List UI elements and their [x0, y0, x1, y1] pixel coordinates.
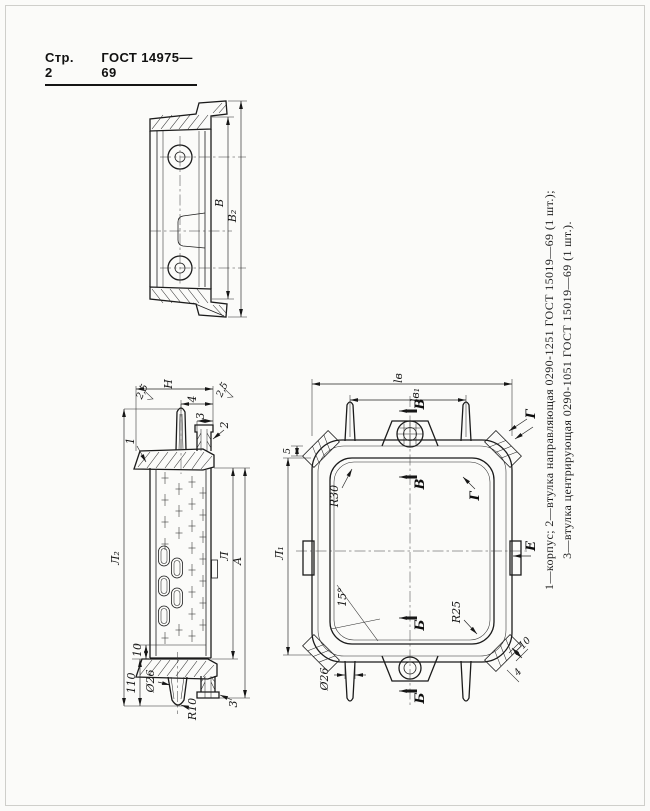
caption-line-1: 1—корпус; 2—втулка направляющая 0290-125…	[540, 190, 558, 590]
section-view-drawing: В В₂	[150, 101, 247, 317]
figure-caption: 1—корпус; 2—втулка направляющая 0290-125…	[540, 190, 576, 590]
dim-label-l: Л	[218, 551, 231, 562]
dim-label-dia26: Ø26	[144, 669, 157, 693]
roughness-mark-right: 2,5	[214, 381, 237, 403]
dim-label-5: 5	[282, 448, 293, 454]
item-callout-1: 1	[124, 438, 137, 445]
dim-label-b: В	[213, 199, 226, 208]
dim-label-l2: Л₂	[109, 551, 122, 566]
dim-label-h: Н	[162, 379, 175, 390]
dim-label-dia26-plan: Ø26	[318, 667, 331, 691]
dim-label-corner4: 4	[511, 666, 524, 679]
dim-label-r30: R30	[328, 485, 341, 508]
plan-view-drawing: lв lв₁ В В Б Б Г Г Е R30 R25 15° Ø26	[273, 373, 539, 706]
dim-label-110: 110	[125, 673, 138, 694]
side-view-drawing: Н 4 3 Л₂ 110 10 Л А Ø26 R10 2 1 3 2,5 2,…	[109, 379, 250, 721]
item-callout-3: 3	[227, 701, 240, 708]
page: { "header": { "page_label": "Стр. 2", "d…	[0, 0, 650, 811]
view-mark-g-inner: Г	[468, 490, 483, 501]
dim-label-corner10: 10	[517, 635, 533, 651]
dim-label-lv: lв	[392, 373, 405, 383]
view-mark-g-outer: Г	[524, 408, 539, 419]
dim-label-b2: В₂	[226, 210, 239, 224]
section-mark-b-bottom: Б	[413, 692, 428, 704]
svg-text:2,5: 2,5	[214, 381, 231, 400]
dim-label-10: 10	[131, 643, 144, 657]
svg-text:2,5: 2,5	[134, 383, 151, 402]
roughness-mark-left: 2,5	[134, 383, 157, 405]
dim-label-a: А	[231, 557, 244, 566]
caption-line-2: 3—втулка центрирующая 0290-1051 ГОСТ 150…	[558, 190, 576, 590]
item-callout-2: 2	[218, 422, 231, 430]
hatch-side-top-flange	[138, 452, 212, 469]
hole-cross-marks	[162, 472, 207, 644]
view-mark-e: Е	[524, 540, 539, 552]
dim-label-angle: 15°	[336, 587, 349, 607]
slot-holes	[159, 546, 183, 626]
dim-label-4: 4	[186, 396, 199, 404]
dim-label-l1: Л₁	[273, 546, 286, 561]
section-mark-v-bottom: В	[413, 479, 428, 491]
section-mark-b-top: Б	[413, 619, 428, 631]
section-mark-v-top: В	[413, 399, 428, 411]
dim-label-r25: R25	[450, 601, 463, 624]
dim-label-3: 3	[194, 413, 207, 420]
dim-label-r10: R10	[186, 698, 199, 721]
